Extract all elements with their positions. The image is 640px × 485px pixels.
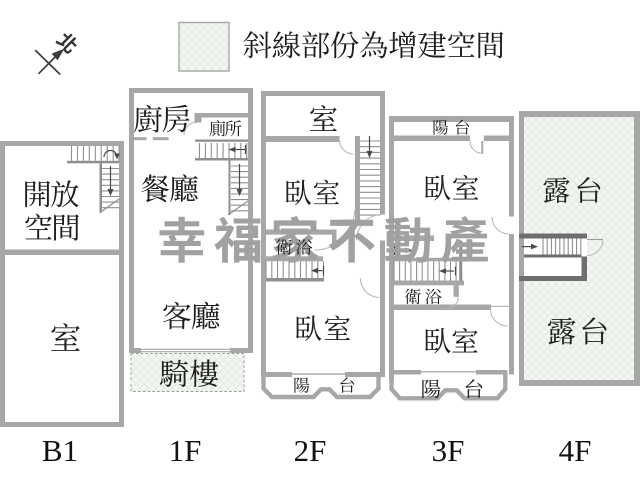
svg-text:B1: B1 <box>42 433 78 468</box>
svg-text:1F: 1F <box>169 433 202 468</box>
svg-text:3F: 3F <box>432 433 465 468</box>
svg-text:4F: 4F <box>559 433 592 468</box>
svg-text:2F: 2F <box>294 433 327 468</box>
